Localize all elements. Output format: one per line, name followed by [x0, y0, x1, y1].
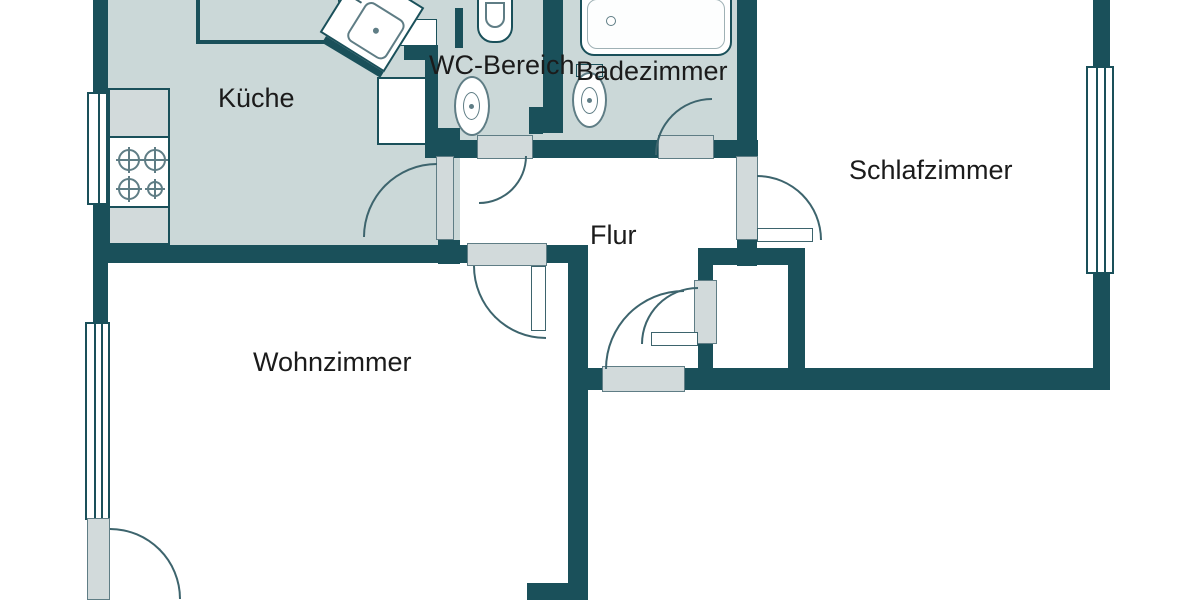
- balcony-door: [87, 518, 110, 600]
- wall: [93, 0, 108, 95]
- window-mullion: [94, 324, 96, 518]
- kitchen-door: [436, 156, 454, 240]
- room-label-wohnzimmer: Wohnzimmer: [253, 348, 412, 376]
- burner-icon: [118, 178, 140, 200]
- counter-edge: [196, 0, 200, 44]
- bedroom-door: [736, 156, 758, 240]
- wall: [568, 245, 588, 600]
- window-mullion: [1104, 68, 1106, 272]
- balcony-door-swing: [110, 528, 181, 599]
- window-mullion: [98, 94, 100, 203]
- wall: [1093, 0, 1110, 68]
- window-mullion: [101, 324, 103, 518]
- burner-icon: [147, 181, 163, 197]
- wc-door-swing: [479, 156, 527, 204]
- wall: [737, 0, 757, 158]
- stove-icon: [108, 136, 170, 208]
- room-label-badezimmer: Badezimmer: [576, 57, 728, 85]
- wall: [527, 583, 588, 600]
- room-label-kueche: Küche: [218, 84, 295, 112]
- room-label-schlafzimmer: Schlafzimmer: [849, 156, 1013, 184]
- pipe-chase: [455, 8, 463, 48]
- bedroom-door-leaf: [757, 228, 813, 242]
- sink-bowl: [485, 2, 505, 28]
- toilet-drain: [587, 98, 592, 103]
- burner-icon: [118, 149, 140, 171]
- kitchen-window: [87, 92, 108, 205]
- window-mullion: [1096, 68, 1098, 272]
- toilet-drain: [469, 104, 474, 109]
- wall: [438, 240, 460, 264]
- wall: [568, 368, 603, 390]
- pedestal-sink-icon: [477, 0, 513, 43]
- wall: [529, 107, 543, 134]
- entrance-door: [602, 366, 685, 392]
- wall: [547, 245, 568, 263]
- room-label-flur: Flur: [590, 221, 637, 249]
- livingroom-window: [85, 322, 110, 520]
- wall: [532, 140, 563, 158]
- bathtub-icon: [580, 0, 732, 56]
- kitchen-appliance: [377, 77, 427, 145]
- livingroom-door: [467, 243, 547, 266]
- wall: [788, 248, 805, 388]
- bathtub-drain: [606, 16, 616, 26]
- entrance-door-swing: [605, 290, 684, 369]
- wall: [93, 245, 468, 263]
- kitchen-counter: [108, 88, 170, 138]
- counter-edge: [196, 40, 342, 44]
- livingroom-door-leaf: [531, 266, 546, 331]
- room-label-wc-bereich: WC-Bereich: [429, 51, 575, 79]
- wall: [93, 203, 108, 325]
- bedroom-window: [1086, 66, 1114, 274]
- sink-drainer: [348, 0, 362, 4]
- burner-icon: [144, 149, 166, 171]
- wall: [562, 140, 660, 158]
- wall: [685, 368, 1110, 390]
- kitchen-counter: [108, 206, 170, 245]
- floor-plan: Küche WC-Bereich Badezimmer Schlafzimmer…: [0, 0, 1200, 600]
- wall: [1093, 272, 1110, 390]
